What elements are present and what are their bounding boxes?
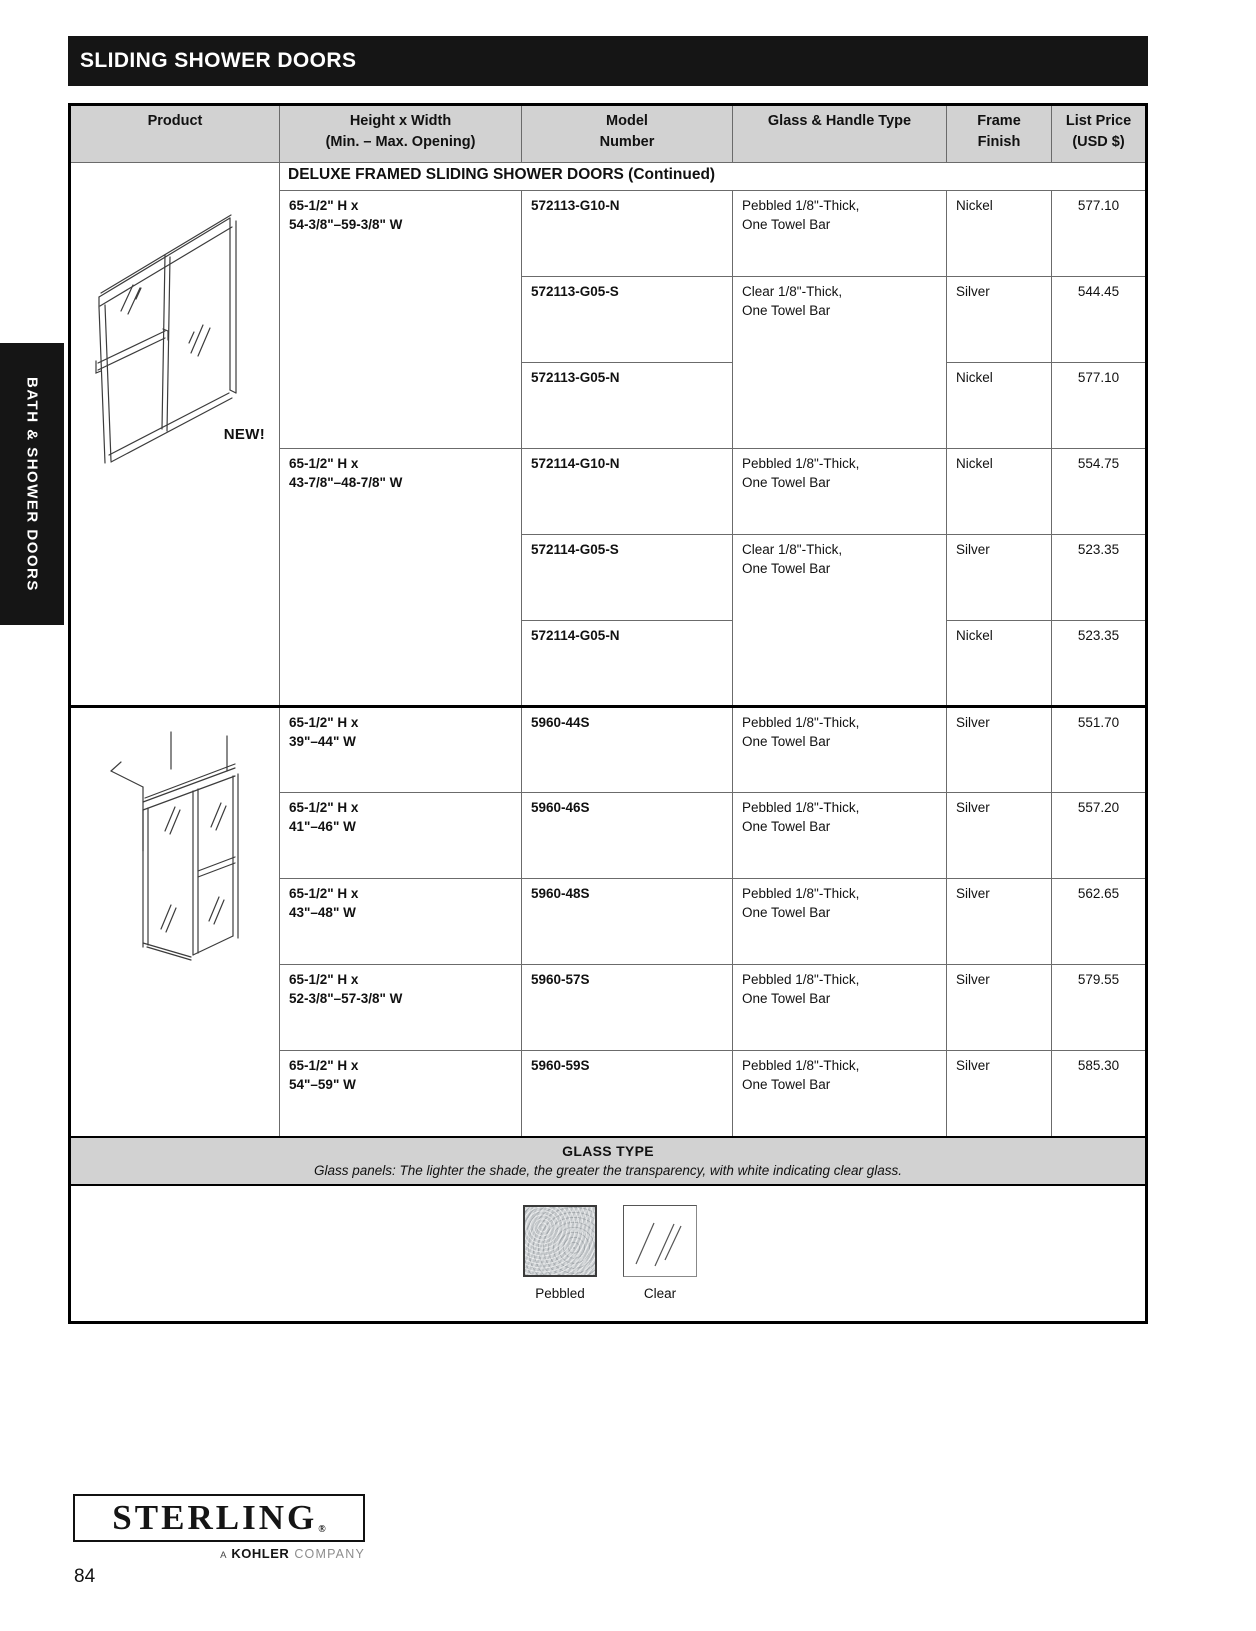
height-width-cell: 65-1/2" H x 43-7/8"–48-7/8" W bbox=[280, 449, 522, 707]
model-number-cell: 5960-48S bbox=[522, 879, 733, 965]
product-cell-5960-series bbox=[70, 707, 280, 1137]
header-frame-finish: Frame Finish bbox=[947, 105, 1052, 163]
glass-handle-cell: Pebbled 1/8"-Thick, One Towel Bar bbox=[733, 449, 947, 535]
height-width-cell: 65-1/2" H x 41"–46" W bbox=[280, 793, 522, 879]
glass-type-description: Glass panels: The lighter the shade, the… bbox=[71, 1163, 1145, 1178]
sidebar-section-tab: BATH & SHOWER DOORS bbox=[0, 343, 64, 625]
list-price-cell: 523.35 bbox=[1052, 621, 1147, 707]
clear-glass-label: Clear bbox=[644, 1286, 676, 1301]
height-width-cell: 65-1/2" H x 43"–48" W bbox=[280, 879, 522, 965]
list-price-cell: 557.20 bbox=[1052, 793, 1147, 879]
list-price-cell: 577.10 bbox=[1052, 191, 1147, 277]
pebbled-glass-sample bbox=[523, 1205, 597, 1277]
registered-trademark-icon: ® bbox=[318, 1524, 325, 1535]
list-price-cell: 544.45 bbox=[1052, 277, 1147, 363]
height-width-cell: 65-1/2" H x 54"–59" W bbox=[280, 1051, 522, 1137]
framed-sliding-door-illustration bbox=[95, 193, 240, 468]
frame-finish-cell: Nickel bbox=[947, 621, 1052, 707]
header-glass-handle-type: Glass & Handle Type bbox=[733, 105, 947, 163]
sterling-logo: STERLING® bbox=[73, 1494, 365, 1542]
list-price-cell: 577.10 bbox=[1052, 363, 1147, 449]
header-model-number: Model Number bbox=[522, 105, 733, 163]
page-title-bar: SLIDING SHOWER DOORS bbox=[68, 36, 1148, 86]
model-number-cell: 572114-G05-N bbox=[522, 621, 733, 707]
glass-handle-cell: Pebbled 1/8"-Thick, One Towel Bar bbox=[733, 965, 947, 1051]
table-row: 65-1/2" H x 39"–44" W 5960-44S Pebbled 1… bbox=[70, 707, 1147, 793]
list-price-cell: 579.55 bbox=[1052, 965, 1147, 1051]
model-number-cell: 5960-46S bbox=[522, 793, 733, 879]
header-height-width: Height x Width (Min. – Max. Opening) bbox=[280, 105, 522, 163]
tagline-a: A bbox=[220, 1550, 226, 1561]
height-width-cell: 65-1/2" H x 39"–44" W bbox=[280, 707, 522, 793]
new-badge: NEW! bbox=[224, 426, 265, 443]
model-number-cell: 572113-G05-S bbox=[522, 277, 733, 363]
model-number-cell: 572114-G10-N bbox=[522, 449, 733, 535]
pebbled-glass-label: Pebbled bbox=[535, 1286, 585, 1301]
tagline-kohler: KOHLER bbox=[231, 1546, 289, 1561]
frame-finish-cell: Nickel bbox=[947, 449, 1052, 535]
header-product: Product bbox=[70, 105, 280, 163]
page-number: 84 bbox=[74, 1566, 95, 1588]
list-price-cell: 585.30 bbox=[1052, 1051, 1147, 1137]
clear-glass-swatch: Clear bbox=[623, 1205, 697, 1301]
pebbled-glass-swatch: Pebbled bbox=[523, 1205, 597, 1301]
frame-finish-cell: Silver bbox=[947, 277, 1052, 363]
frame-finish-cell: Silver bbox=[947, 793, 1052, 879]
section-header-row: NEW! DELUXE FRAMED SLIDING SHOWER DOORS … bbox=[70, 163, 1147, 191]
frame-finish-cell: Silver bbox=[947, 707, 1052, 793]
height-width-cell: 65-1/2" H x 54-3/8"–59-3/8" W bbox=[280, 191, 522, 449]
model-number-cell: 5960-59S bbox=[522, 1051, 733, 1137]
list-price-cell: 551.70 bbox=[1052, 707, 1147, 793]
glass-swatch-row: Pebbled Clear bbox=[70, 1185, 1147, 1323]
frame-finish-cell: Silver bbox=[947, 965, 1052, 1051]
alcove-sliding-door-illustration bbox=[109, 710, 254, 980]
kohler-tagline: AKOHLERCOMPANY bbox=[73, 1545, 365, 1563]
glass-handle-cell: Clear 1/8"-Thick, One Towel Bar bbox=[733, 535, 947, 707]
frame-finish-cell: Nickel bbox=[947, 363, 1052, 449]
model-number-cell: 5960-44S bbox=[522, 707, 733, 793]
glass-handle-cell: Pebbled 1/8"-Thick, One Towel Bar bbox=[733, 191, 947, 277]
header-list-price: List Price (USD $) bbox=[1052, 105, 1147, 163]
glass-handle-cell: Pebbled 1/8"-Thick, One Towel Bar bbox=[733, 707, 947, 793]
list-price-cell: 523.35 bbox=[1052, 535, 1147, 621]
frame-finish-cell: Silver bbox=[947, 879, 1052, 965]
clear-glass-sample bbox=[623, 1205, 697, 1277]
sterling-wordmark: STERLING bbox=[112, 1498, 317, 1538]
table-header-row: Product Height x Width (Min. – Max. Open… bbox=[70, 105, 1147, 163]
model-number-cell: 572113-G05-N bbox=[522, 363, 733, 449]
product-table: Product Height x Width (Min. – Max. Open… bbox=[68, 103, 1148, 1324]
glass-handle-cell: Clear 1/8"-Thick, One Towel Bar bbox=[733, 277, 947, 449]
frame-finish-cell: Silver bbox=[947, 1051, 1052, 1137]
sidebar-section-label: BATH & SHOWER DOORS bbox=[24, 377, 41, 592]
glass-handle-cell: Pebbled 1/8"-Thick, One Towel Bar bbox=[733, 1051, 947, 1137]
glass-type-title: GLASS TYPE bbox=[71, 1143, 1145, 1159]
catalog-page: SLIDING SHOWER DOORS BATH & SHOWER DOORS… bbox=[0, 0, 1256, 1631]
tagline-company: COMPANY bbox=[294, 1547, 365, 1561]
section-header: DELUXE FRAMED SLIDING SHOWER DOORS (Cont… bbox=[280, 163, 1147, 191]
frame-finish-cell: Silver bbox=[947, 535, 1052, 621]
height-width-cell: 65-1/2" H x 52-3/8"–57-3/8" W bbox=[280, 965, 522, 1051]
list-price-cell: 562.65 bbox=[1052, 879, 1147, 965]
model-number-cell: 572113-G10-N bbox=[522, 191, 733, 277]
frame-finish-cell: Nickel bbox=[947, 191, 1052, 277]
glass-handle-cell: Pebbled 1/8"-Thick, One Towel Bar bbox=[733, 793, 947, 879]
glass-type-banner: GLASS TYPE Glass panels: The lighter the… bbox=[70, 1137, 1147, 1185]
model-number-cell: 5960-57S bbox=[522, 965, 733, 1051]
list-price-cell: 554.75 bbox=[1052, 449, 1147, 535]
product-cell-572-series: NEW! bbox=[70, 163, 280, 707]
glass-handle-cell: Pebbled 1/8"-Thick, One Towel Bar bbox=[733, 879, 947, 965]
model-number-cell: 572114-G05-S bbox=[522, 535, 733, 621]
page-title: SLIDING SHOWER DOORS bbox=[80, 49, 356, 73]
